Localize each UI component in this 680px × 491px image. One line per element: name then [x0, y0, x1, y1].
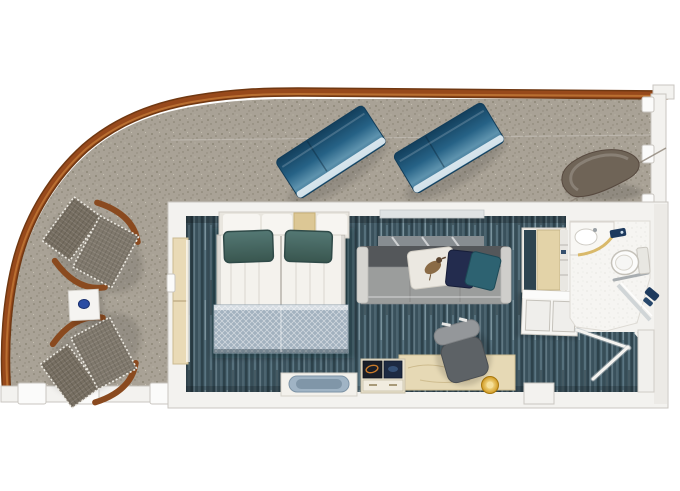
bed-pillow-right: [284, 230, 332, 263]
media-console: [361, 359, 405, 393]
foot-bench: [281, 373, 357, 396]
cabin-floor-plan: [0, 0, 680, 491]
cabin: [167, 202, 668, 408]
bed-pillow-left: [223, 230, 273, 263]
divider-post: [642, 97, 654, 112]
balcony-side-table: [68, 289, 105, 326]
right-wall-face: [654, 204, 667, 404]
bed-blanket: [214, 305, 348, 353]
dresser-door-left: [525, 300, 550, 331]
sofa-arm-right: [501, 247, 511, 303]
closet: [522, 228, 568, 292]
railing-post: [18, 383, 46, 404]
double-bed: [212, 212, 354, 358]
faucet: [593, 228, 597, 232]
door-handle: [167, 274, 175, 292]
sofa-arm-left: [357, 247, 368, 303]
table-decor: [78, 299, 89, 309]
wall-notch: [524, 383, 554, 404]
closet-side-panel: [524, 230, 536, 290]
entry-door-jamb: [638, 330, 654, 392]
closet-interior: [537, 230, 560, 290]
floor-plan-stage: [0, 0, 680, 491]
sofa: [357, 246, 511, 304]
